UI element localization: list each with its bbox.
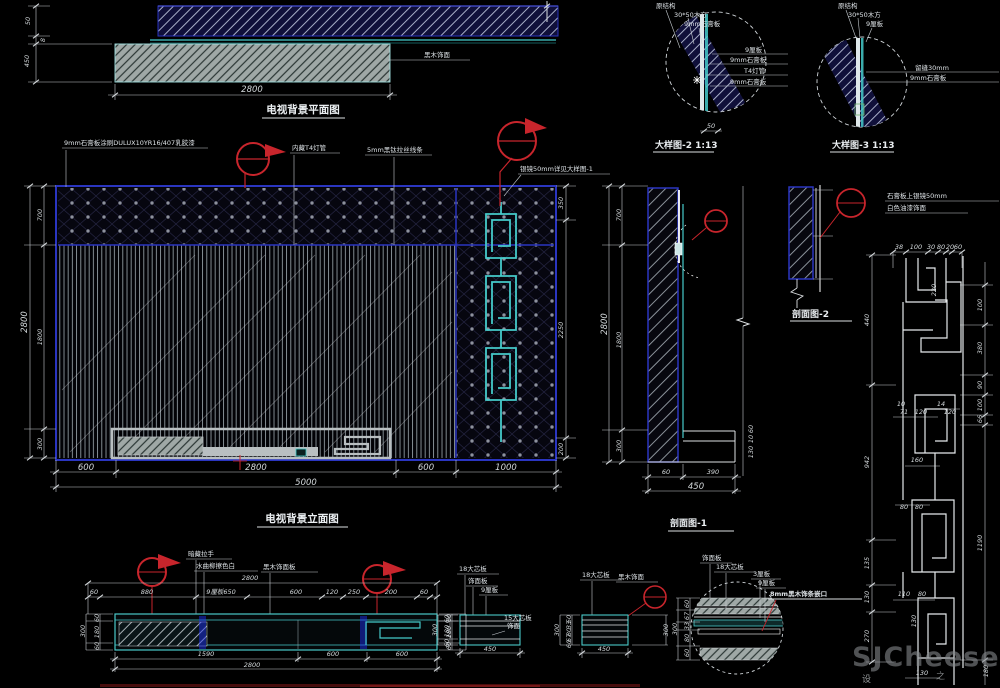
note-text: 18大芯板 [582,570,610,579]
dim-text: 9厘板650 [206,588,236,596]
note-text: 9mm石膏板 [684,19,721,28]
note-text: 原结构 [656,1,676,10]
dim-text: 10 [897,400,905,408]
dim-text: 1800 [615,332,623,349]
cabinet-plan-detail: 暗藏拉手 水曲柳擦色白 黑木饰面板 2800 60 880 9厘板650 600… [79,549,467,672]
detail-3: 原结构 30*50木方 9厘板 留缝30mm 9mm石膏板 大样图-3 1:13 [817,1,999,152]
dim-text: 80 [918,590,926,598]
dim-text: 67 [683,611,691,620]
dim-text: 80 [937,243,945,251]
louver-field [58,245,456,458]
dim-text: 2800 [241,85,263,95]
note-text: 饰面 [507,621,521,630]
dim-text: 66 [976,415,984,423]
note-text: 9厘板 [866,19,884,28]
dim-text: 450 [23,55,31,67]
dim-text: 60 [93,642,101,650]
plan-title: 电视背景平面图 [266,103,340,116]
dim-text: 700 [36,209,44,221]
watermark: SJCheese 设 之 [852,642,1000,685]
dim-text: 90 [976,381,984,389]
note-text: 黑木饰面板 [263,562,296,571]
dim-text: 30 [927,243,935,251]
dim-text: 2800 [20,311,30,333]
dim-text: 5000 [295,478,317,488]
plan-cabinet-hatch [115,44,390,82]
dim-text: 180 [93,626,101,638]
note-text: 18大芯板 [716,562,744,571]
drawer-hatch [119,622,207,646]
note-text: 30*50木方 [674,10,707,19]
dim-text: 1800 [36,329,44,346]
dim-text: 600 [396,650,408,658]
dim-text: 300 [671,623,679,635]
note-text: 原结构 [838,1,858,10]
dim-text: 440 [863,314,871,326]
box-outline [582,615,628,645]
dim-text: 60 [683,600,691,608]
dim-text: 300 [662,624,670,636]
dim-text: 350 [557,197,565,209]
dim-text: 160 [911,456,923,464]
dim-text: 380 [976,342,984,354]
dim-text: 600 [327,650,339,658]
dim-text: 130 [747,446,755,458]
dim-text: 1000 [495,463,517,473]
dim-text: 71 [900,408,908,416]
note-text: 15大芯板 [504,613,532,622]
dim-text: 60 [747,425,755,433]
section-1: 2800 700 1800 300 60 390 450 60 10 130 剖… [600,184,755,531]
cabinet-section-a: 18大芯板 饰面板 9厘板 15大芯板 饰面 60 180 60 300 450 [431,564,532,658]
note-text: 9厘板 [745,45,763,54]
dim-text: 1590 [198,650,215,658]
dim-text: 80 [900,503,908,511]
watermark-glyph: 之 [936,670,945,682]
dim-text: 110 [898,590,910,598]
dim-text: 270 [863,630,871,642]
note-text: 内藏T4灯管 [292,143,327,152]
dim-text: 600 [290,588,302,596]
section1-title: 剖面图-1 [670,517,707,529]
note-text: 9mm石膏板 [730,77,767,86]
note-text: 3厘板 [753,569,771,578]
dim-text: 450 [598,645,610,653]
dim-text: 60 [683,649,691,657]
dim-text: 80 [683,634,691,642]
dim-text: 300 [553,624,561,636]
elevation-view: 9mm石膏板涂刷DULUX10YR16/407乳胶漆 内藏T4灯管 5mm黑钛拉… [20,118,610,527]
dim-text: 130 [910,615,918,627]
cad-drawing: 2800 50 450 8 黑木饰面 电视背景平面图 9mm石膏板涂刷 [0,0,1000,688]
elevation-title: 电视背景立面图 [265,512,339,525]
dim-text: 60 [93,614,101,622]
dim-text: 10 [747,435,755,443]
dim-text: 942 [863,456,871,468]
cad-sheet: 2800 50 450 8 黑木饰面 电视背景平面图 9mm石膏板涂刷 [0,0,1000,688]
dim-text: 120 [944,408,956,416]
dim-text: 450 [484,645,496,653]
note-text: 5mm黑钛拉丝线条 [367,145,423,154]
detail-2: 原结构 30*50木方 9mm石膏板 9厘板 9mm石膏板 T4灯管 9mm石膏… [653,1,788,152]
dim-text: 300 [615,440,623,452]
dim-text: 250 [348,588,360,596]
upholstered-column [456,188,554,458]
note-text: 9mm石膏板涂刷DULUX10YR16/407乳胶漆 [64,138,195,147]
watermark-brand: SJCheese [852,642,1000,673]
dim-text: 450 [688,482,704,492]
dim-text: 200 [385,588,397,596]
note-text: 9mm石膏板 [910,73,947,82]
fret-dim-lines [866,250,993,685]
dim-text: 1190 [976,535,984,552]
plan-view: 2800 50 450 8 黑木饰面 电视背景平面图 [23,1,558,118]
dim-text: 60 [420,588,428,596]
note-text: 暗藏拉手 [188,549,215,558]
dim-text: 200 [557,443,565,455]
dim-text: 60 [443,615,451,623]
note-text: 饰面板 [468,576,488,585]
dim-text: 2800 [600,313,610,335]
detail3-title: 大样图-3 1:13 [832,139,895,151]
note-text: 水曲柳擦色白 [196,561,235,570]
note-text: 黑木饰面 [618,572,645,581]
detail2-title: 大样图-2 1:13 [655,139,718,151]
dim-text: 130 [863,591,871,603]
dim-text: 50 [24,17,32,25]
dim-text: 135 [863,557,871,569]
dim-text: 180 [443,625,451,637]
dim-text: 2800 [244,661,261,669]
material-note: 黑木饰面 [424,50,451,59]
wall-patch [818,36,888,130]
section2-title: 剖面图-2 [792,308,829,320]
note-text: 白色油漆饰面 [887,203,927,212]
dim-text: 60 [954,243,962,251]
note-text: T4灯管 [743,66,766,75]
section-arrow [525,118,547,134]
dim-text: 220 [930,284,938,296]
dim-text: 60 [662,468,670,476]
wall-hatch [648,188,678,462]
fret-detail: 石膏板上银镜50mm 白色油漆饰面 38 100 30 [863,191,999,685]
dim-text: 8 [39,38,47,42]
board-buildup-detail: 饰面板 18大芯板 3厘板 9厘板 8mm黑木饰条嵌口 60 67 33 80 … [671,553,862,674]
lamp-box [675,243,682,255]
dim-text: 390 [707,468,719,476]
dim-text: 38 [895,243,903,251]
dim-text: 2250 [557,322,565,339]
note-text: 9mm石膏板 [730,55,767,64]
dim-text: 300 [36,438,44,450]
dim-text: 100 [976,299,984,311]
note-text: 石膏板上银镜50mm [887,191,947,200]
plan-wall-hatch [158,6,558,36]
dim-text: 120 [915,408,927,416]
lamp-symbol [693,76,701,84]
dim-text: 60 [565,640,573,648]
note-text: 留缝30mm [915,63,949,72]
cabinet-section-b: 18大芯板 黑木饰面 50 33 80 67 60 300 450 300 [553,570,670,658]
dim-text: 700 [615,209,623,221]
dim-text: 100 [976,399,984,411]
note-text: 18大芯板 [459,564,487,573]
dim-text: 600 [78,463,94,473]
dim-text: 300 [79,625,87,637]
dim-text: 33 [683,622,691,630]
dim-text: 300 [431,624,439,636]
dim-text: 2800 [242,574,259,582]
watermark-glyph: 设 [862,674,871,685]
dim-text: 880 [141,588,153,596]
bottom-red-band [360,685,540,687]
dim-text: 120 [326,588,338,596]
dim-text: 14 [937,400,945,408]
dim-text: 100 [910,243,922,251]
dim-text: 80 [915,503,923,511]
wall-hatch [789,187,813,279]
dim-text: 60 [90,588,98,596]
note-text: 银镜50mm详见大样图-1 [520,164,593,173]
note-text: 30*50木方 [848,10,881,19]
section-2: 剖面图-2 [789,185,865,321]
dim-text: 60 [443,639,451,647]
note-text: 9厘板 [758,578,776,587]
dim-text: 50 [707,122,715,130]
note-text: 饰面板 [702,553,722,562]
dim-text: 600 [418,463,434,473]
section-arrow [265,144,286,157]
note-text: 8mm黑木饰条嵌口 [770,589,827,598]
dim-text: 2800 [245,463,267,473]
note-text: 9厘板 [481,585,499,594]
